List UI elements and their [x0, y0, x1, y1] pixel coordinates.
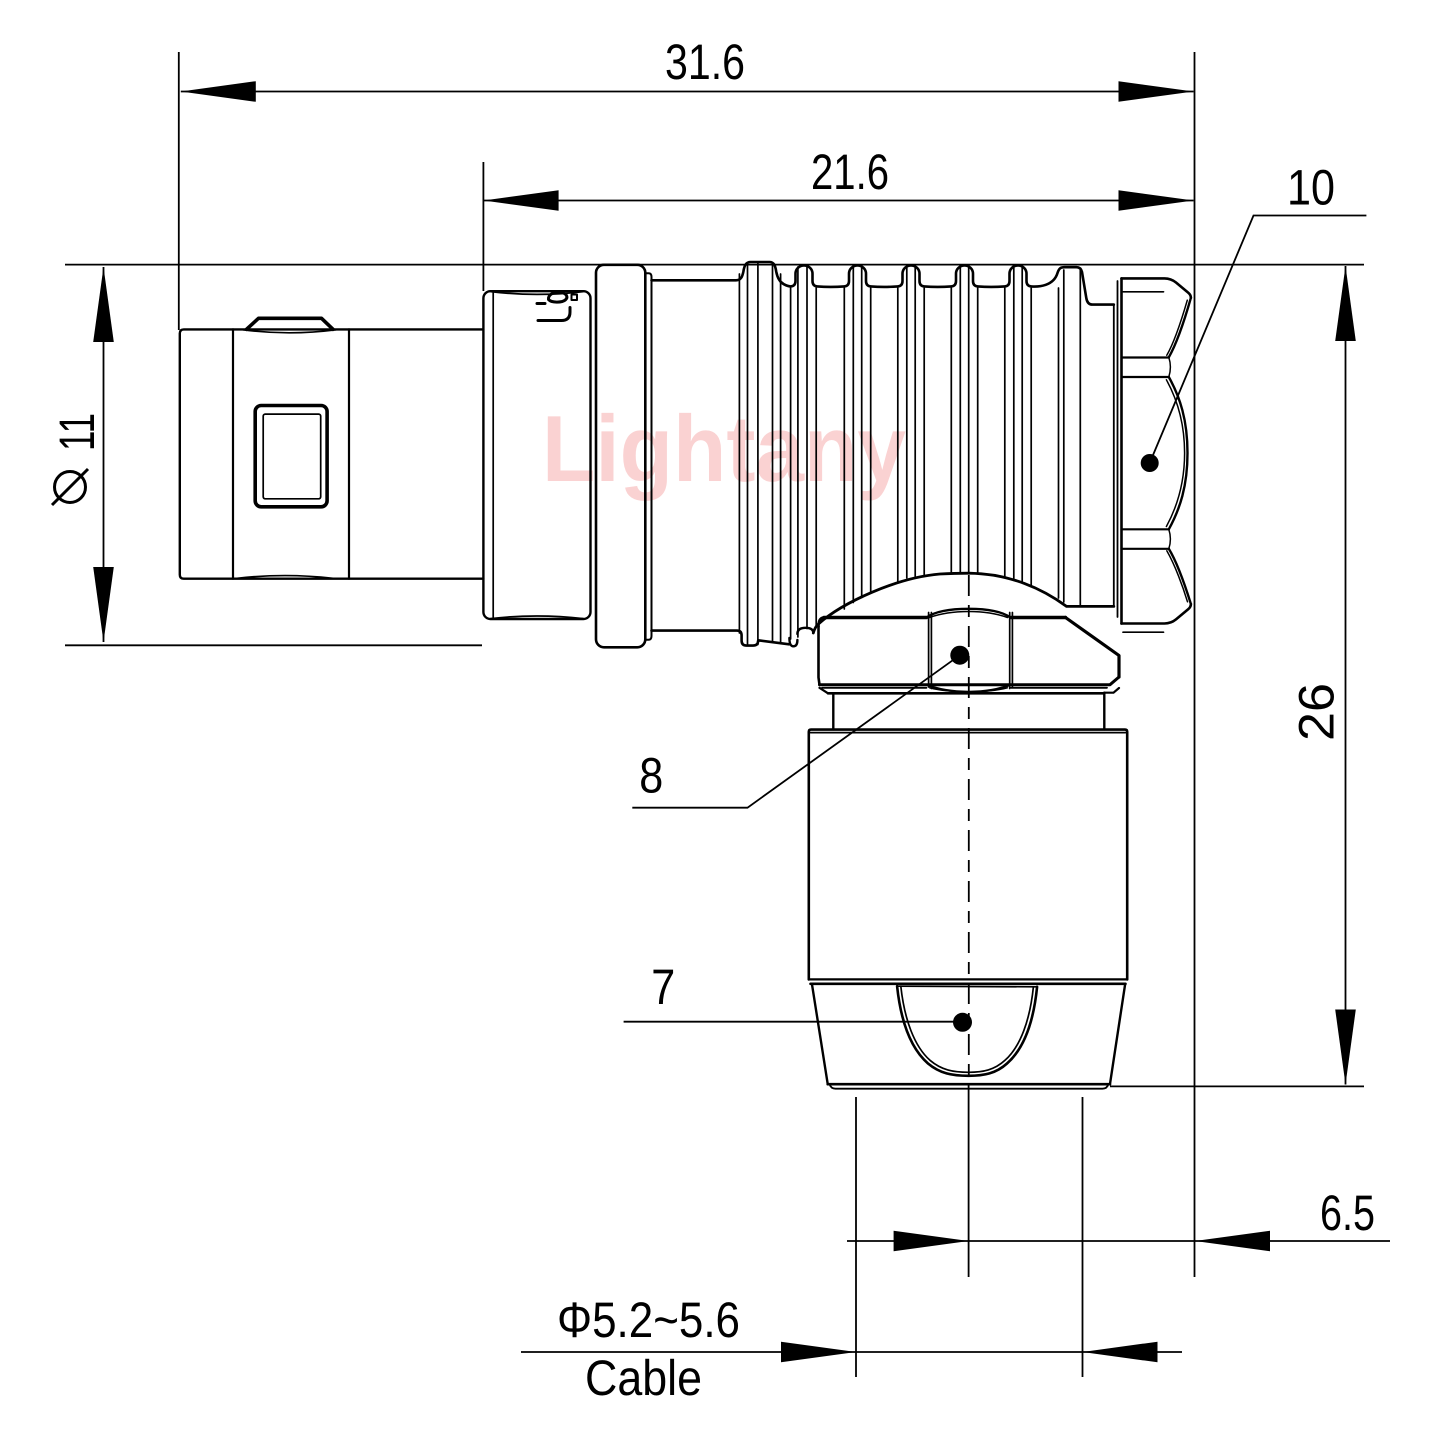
svg-text:7: 7 [651, 959, 675, 1015]
svg-text:11: 11 [49, 413, 105, 451]
svg-text:21.6: 21.6 [811, 144, 889, 200]
svg-text:26: 26 [1289, 683, 1345, 741]
svg-text:Φ5.2~5.6: Φ5.2~5.6 [557, 1292, 740, 1348]
svg-text:31.6: 31.6 [665, 34, 745, 90]
svg-text:8: 8 [639, 748, 663, 804]
svg-text:Cable: Cable [585, 1350, 702, 1406]
svg-text:10: 10 [1287, 160, 1335, 216]
svg-text:6.5: 6.5 [1320, 1185, 1375, 1241]
